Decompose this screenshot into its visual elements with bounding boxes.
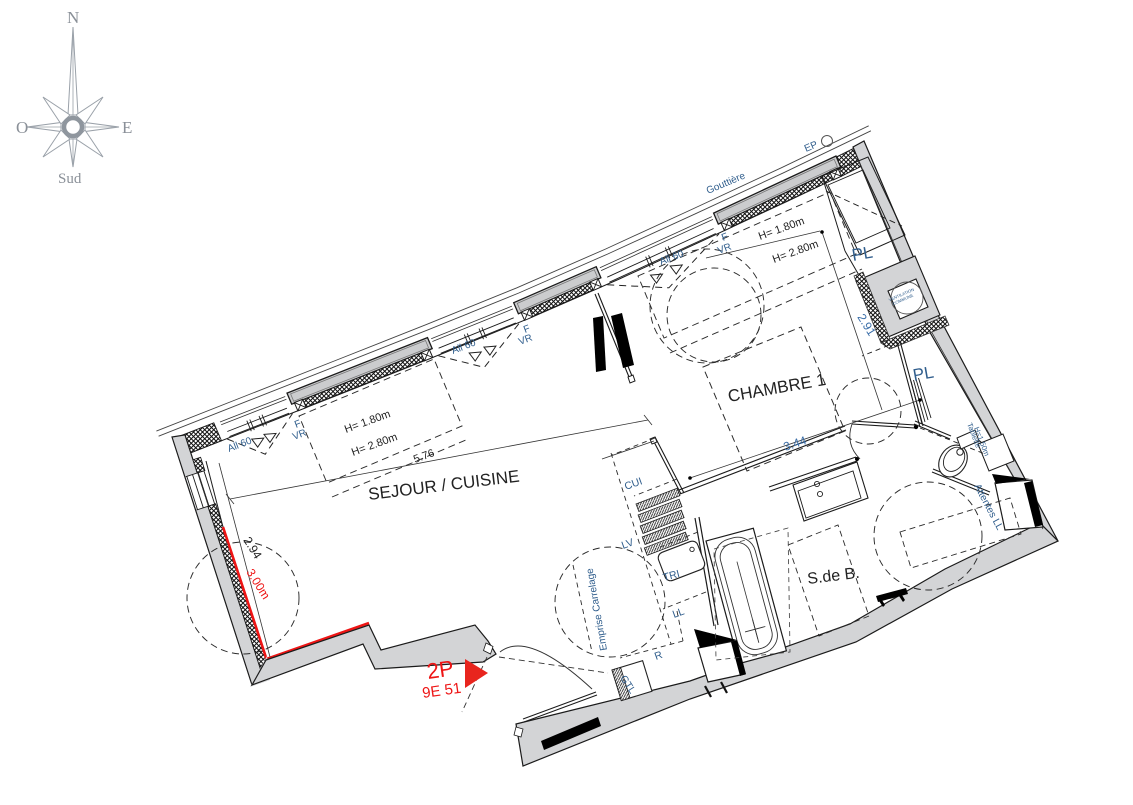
- svg-text:R: R: [653, 649, 665, 663]
- svg-text:E: E: [122, 118, 132, 137]
- svg-text:EP: EP: [803, 139, 820, 154]
- svg-text:3.44: 3.44: [782, 433, 809, 454]
- svg-text:PL: PL: [850, 243, 874, 265]
- svg-text:LV: LV: [620, 536, 635, 551]
- svg-text:PL: PL: [911, 363, 935, 385]
- svg-text:H= 1.80m: H= 1.80m: [343, 408, 392, 436]
- svg-text:All 60: All 60: [226, 435, 254, 454]
- svg-text:CUI: CUI: [623, 475, 644, 492]
- svg-text:LL: LL: [671, 605, 686, 620]
- svg-text:All 60: All 60: [450, 337, 478, 356]
- svg-text:5.76: 5.76: [412, 447, 436, 466]
- svg-text:Sud: Sud: [58, 171, 82, 187]
- svg-text:9E 51: 9E 51: [421, 680, 462, 702]
- svg-text:N: N: [67, 8, 79, 27]
- svg-text:VR: VR: [517, 333, 534, 348]
- svg-text:3.00m: 3.00m: [243, 566, 273, 602]
- svg-text:S.de B.: S.de B.: [806, 565, 860, 588]
- svg-text:O: O: [16, 118, 28, 137]
- svg-text:2P: 2P: [425, 655, 455, 684]
- svg-text:H= 2.80m: H= 2.80m: [771, 238, 820, 266]
- svg-text:VR: VR: [291, 428, 308, 443]
- svg-text:H= 1.80m: H= 1.80m: [757, 215, 806, 243]
- svg-text:CHAMBRE 1: CHAMBRE 1: [726, 370, 827, 406]
- svg-text:H= 2.80m: H= 2.80m: [350, 431, 399, 459]
- svg-text:Emprise Carrelage: Emprise Carrelage: [585, 567, 610, 651]
